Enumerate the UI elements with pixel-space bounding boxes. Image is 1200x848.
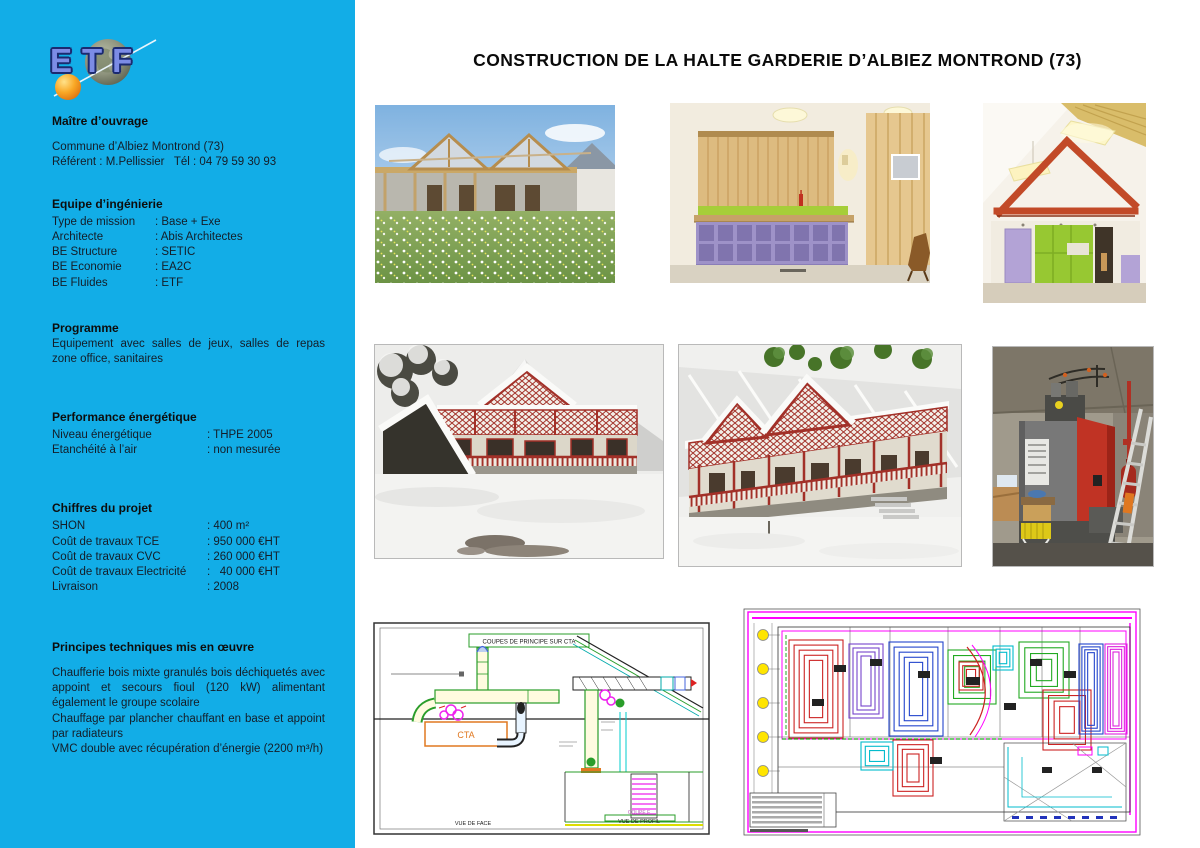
info-row: BE Economie: EA2C [52,260,325,275]
vue-de-face-label: VUE DE FACE [455,821,492,827]
photo-wood-boiler-room [993,347,1153,566]
section-programme: Programme Equipement avec salles de jeux… [52,321,325,368]
etf-logo-text: ETF [50,42,142,80]
info-row: BE Fluides: ETF [52,276,325,291]
photo-chalet-winter-front [375,345,663,558]
section-title: Principes techniques mis en œuvre [52,640,325,654]
info-row: Niveau énergétique: THPE 2005 [52,428,325,443]
vue-de-profil-label: VUE DE PROFIL [618,819,660,825]
info-row: Coût de travaux Electricité: 40 000 €HT [52,565,325,580]
info-row: Livraison: 2008 [52,580,325,595]
info-row: Architecte: Abis Architectes [52,230,325,245]
section-performance: Performance énergétique Niveau énergétiq… [52,410,325,459]
cta-box-label: CTA [457,730,474,740]
info-row: Coût de travaux CVC: 260 000 €HT [52,550,325,565]
project-sheet: ETF Maître d’ouvrage Commune d’Albiez Mo… [0,0,1200,848]
etf-logo: ETF [44,34,164,104]
section-equipe: Equipe d’ingénierie Type de mission: Bas… [52,197,325,291]
sidebar: ETF Maître d’ouvrage Commune d’Albiez Mo… [0,0,355,848]
drawing-title-label: COUPES DE PRINCIPE SUR CTA [483,640,576,646]
section-title: Equipe d’ingénierie [52,197,325,211]
section-title: Programme [52,321,325,335]
principes-paragraph: Chauffage par plancher chauffant en base… [52,712,325,743]
section-principes: Principes techniques mis en œuvre Chauff… [52,640,325,758]
photo-interior-cubbies [670,103,930,283]
principes-paragraph: VMC double avec récupération d’énergie (… [52,742,325,757]
section-title: Maître d’ouvrage [52,114,325,128]
info-row: BE Structure: SETIC [52,245,325,260]
principes-paragraph: Chaufferie bois mixte granulés bois déch… [52,666,325,712]
section-chiffres: Chiffres du projet SHON: 400 m² Coût de … [52,501,325,595]
photo-building-construction-meadow [375,105,615,283]
photo-attic-interior-red-beams [983,103,1146,303]
drawing-cta-sections: COUPES DE PRINCIPE SUR CTA CTA [373,622,710,835]
info-row: SHON: 400 m² [52,519,325,534]
coupe-f-label: COUPE F [628,810,650,816]
page-title: CONSTRUCTION DE LA HALTE GARDERIE D’ALBI… [355,50,1200,71]
programme-text: Equipement avec salles de jeux, salles d… [52,337,325,368]
contact-line: Référent : M.Pellissier Tél : 04 79 59 3… [52,155,325,170]
info-row: Coût de travaux TCE: 950 000 €HT [52,535,325,550]
info-row: Etanchéité à l’air: non mesurée [52,443,325,458]
main-content: CONSTRUCTION DE LA HALTE GARDERIE D’ALBI… [355,0,1200,848]
section-title: Chiffres du projet [52,501,325,515]
section-title: Performance énergétique [52,410,325,424]
drawing-floor-heating-plan [742,607,1142,837]
photo-chalet-winter-side [679,345,961,566]
info-row: Type de mission: Base + Exe [52,215,325,230]
section-maitre-ouvrage: Maître d’ouvrage Commune d’Albiez Montro… [52,114,325,171]
client-line: Commune d’Albiez Montrond (73) [52,140,325,155]
